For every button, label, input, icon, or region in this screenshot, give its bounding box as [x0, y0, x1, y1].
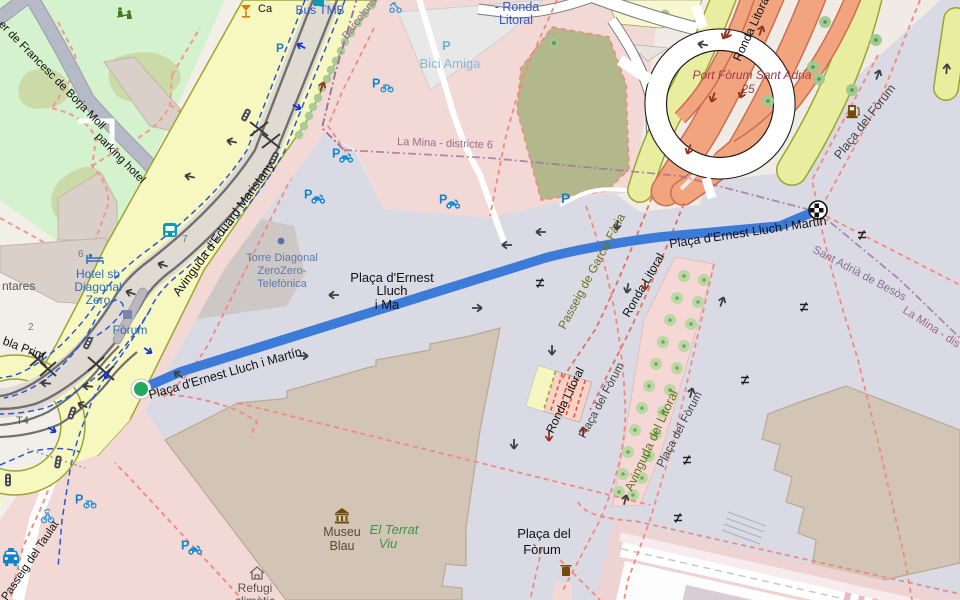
svg-text:Museu: Museu: [323, 525, 361, 539]
svg-text:Port Fòrum Sant Adrià: Port Fòrum Sant Adrià: [693, 68, 812, 82]
svg-text:Ca: Ca: [258, 3, 273, 15]
svg-text:i Ma: i Ma: [375, 297, 400, 312]
svg-text:ntares: ntares: [2, 279, 35, 293]
svg-text:climàtic: climàtic: [235, 594, 275, 600]
svg-text:P: P: [276, 41, 284, 55]
svg-text:Torre Diagonal: Torre Diagonal: [246, 252, 318, 264]
svg-text:Bus TMB: Bus TMB: [295, 3, 344, 17]
svg-text:Fòrum: Fòrum: [523, 542, 561, 557]
svg-text:Diagonal: Diagonal: [74, 280, 121, 294]
svg-text:Zero: Zero: [86, 293, 111, 307]
svg-text:Lluch: Lluch: [376, 283, 407, 298]
svg-text:Hotel sb: Hotel sb: [76, 267, 120, 281]
svg-text:P: P: [561, 190, 570, 206]
svg-text:2: 2: [28, 322, 34, 333]
svg-text:6: 6: [78, 249, 84, 260]
svg-text:Plaça del: Plaça del: [517, 526, 571, 541]
svg-text:ZeroZero-: ZeroZero-: [258, 265, 307, 277]
svg-text:Refugi: Refugi: [238, 581, 273, 595]
svg-text:7: 7: [182, 234, 188, 245]
svg-text:- Ronda: - Ronda: [495, 0, 540, 14]
svg-text:Litoral: Litoral: [499, 13, 533, 27]
svg-text:Telefònica: Telefònica: [257, 278, 307, 290]
svg-text:Viu: Viu: [379, 536, 398, 551]
svg-text:T4: T4: [16, 415, 29, 427]
svg-text:Bici Amiga: Bici Amiga: [420, 56, 481, 71]
svg-text:Blau: Blau: [329, 539, 354, 553]
svg-text:El Terrat: El Terrat: [370, 522, 420, 537]
svg-text:P: P: [442, 38, 451, 53]
svg-text:Fòrum: Fòrum: [113, 323, 148, 337]
